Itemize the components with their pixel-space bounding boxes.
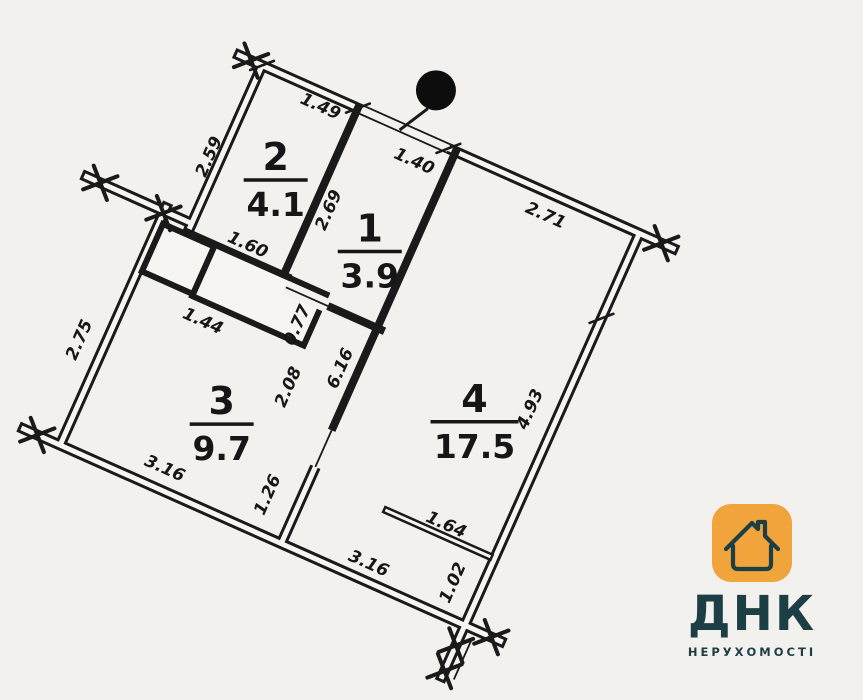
room-1-number: 1 bbox=[357, 206, 383, 250]
entrance-marker-dot bbox=[410, 64, 463, 117]
room-4-area: 17.5 bbox=[434, 427, 515, 466]
room-4-number: 4 bbox=[461, 377, 487, 421]
dim-bottom-stub: 1.26 bbox=[250, 472, 285, 519]
dimension-labels: 1.49 2.59 1.40 2.71 2.69 1.60 0.77 1.44 … bbox=[31, 43, 621, 612]
dim-bottom-right: 1.02 bbox=[435, 560, 470, 606]
logo-tagline-text: НЕРУХОМОСТІ bbox=[688, 645, 816, 659]
dim-corridor: 2.08 bbox=[271, 364, 306, 411]
room-2-area: 4.1 bbox=[246, 185, 304, 224]
room-1-label: 1 3.9 bbox=[338, 206, 402, 295]
dim-left-room3: 2.75 bbox=[62, 317, 97, 363]
room-4-label: 4 17.5 bbox=[431, 377, 519, 466]
dim-right-room4: 4.93 bbox=[512, 386, 548, 433]
room-3-label: 3 9.7 bbox=[190, 379, 254, 468]
room-1-area: 3.9 bbox=[341, 256, 399, 295]
floor-plan: 1.49 2.59 1.40 2.71 2.69 1.60 0.77 1.44 … bbox=[0, 0, 705, 700]
room-3-area: 9.7 bbox=[192, 429, 250, 468]
room-2-label: 2 4.1 bbox=[244, 135, 308, 224]
floor-plan-canvas: 1.49 2.59 1.40 2.71 2.69 1.60 0.77 1.44 … bbox=[0, 0, 863, 700]
logo: ДНК НЕРУХОМОСТІ bbox=[688, 504, 816, 659]
logo-brand-text: ДНК bbox=[688, 586, 816, 642]
dim-entrance-door: 1.40 bbox=[391, 144, 438, 179]
room-2-number: 2 bbox=[262, 135, 288, 179]
room-3-number: 3 bbox=[208, 379, 234, 423]
